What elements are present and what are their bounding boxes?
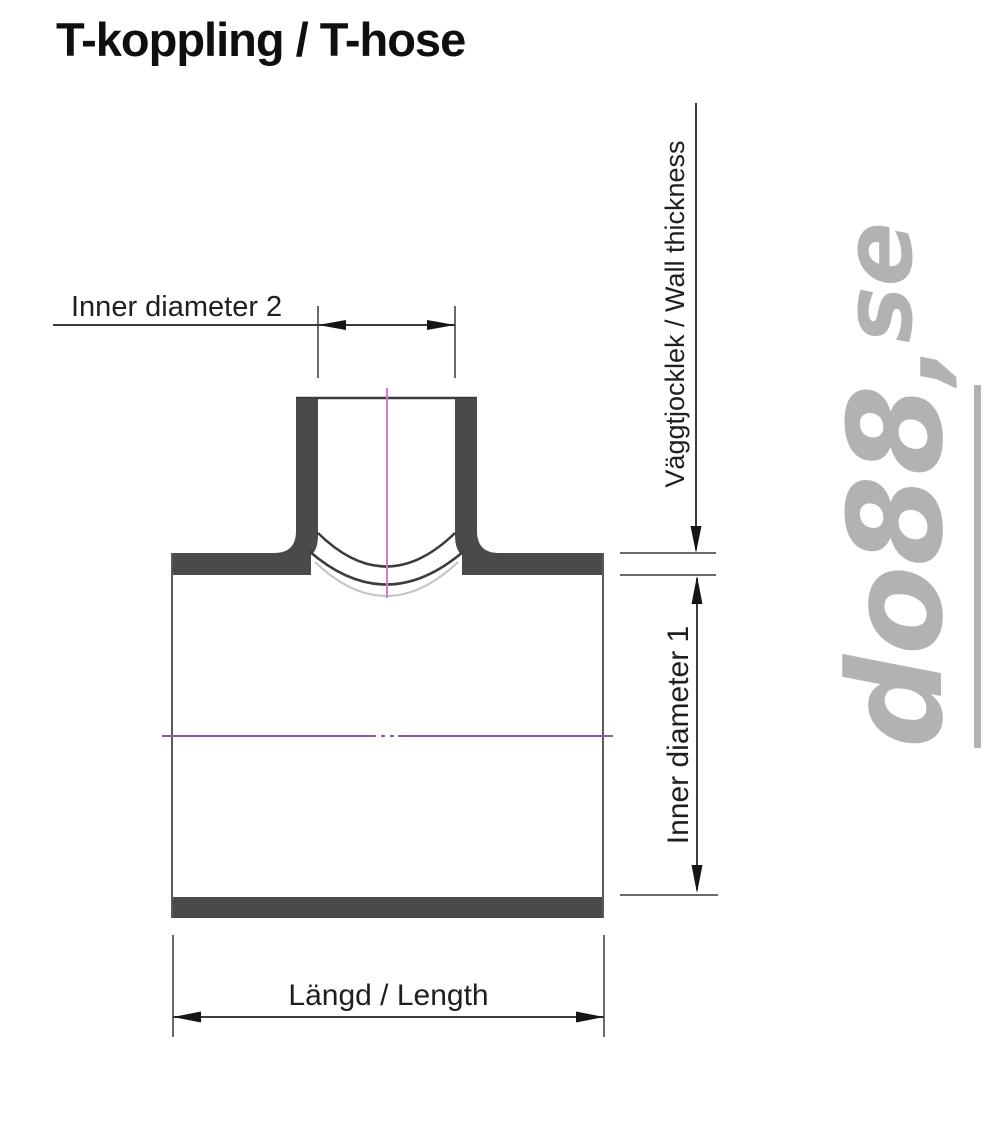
- arrow-right-icon: [576, 1012, 604, 1023]
- dim-label-wall-thickness: Väggtjocklek / Wall thickness: [660, 104, 690, 524]
- bottom-wall-section: [172, 897, 603, 918]
- arrow-up-icon: [692, 576, 703, 604]
- page-title: T-koppling / T-hose: [56, 12, 465, 67]
- diagram-page: T-koppling / T-hose Inner diameter 2 Väg…: [0, 0, 1000, 1137]
- dim-label-length: Längd / Length: [173, 979, 604, 1013]
- arrow-left-icon: [173, 1012, 201, 1023]
- arrow-left-icon: [318, 320, 346, 330]
- arrow-right-icon: [427, 320, 455, 330]
- watermark-brand: do88: [820, 385, 981, 748]
- watermark-separator: ,: [839, 343, 967, 385]
- arrow-down-icon: [691, 526, 702, 553]
- watermark-tld: se: [824, 222, 934, 343]
- do88-watermark-logo: do88,se: [820, 225, 990, 745]
- arrow-down-icon: [692, 865, 703, 893]
- dim-label-inner-diameter-2: Inner diameter 2: [71, 291, 282, 324]
- right-wall-section: [455, 399, 603, 575]
- dim-label-inner-diameter-1: Inner diameter 1: [663, 610, 695, 860]
- left-wall-section: [172, 399, 318, 575]
